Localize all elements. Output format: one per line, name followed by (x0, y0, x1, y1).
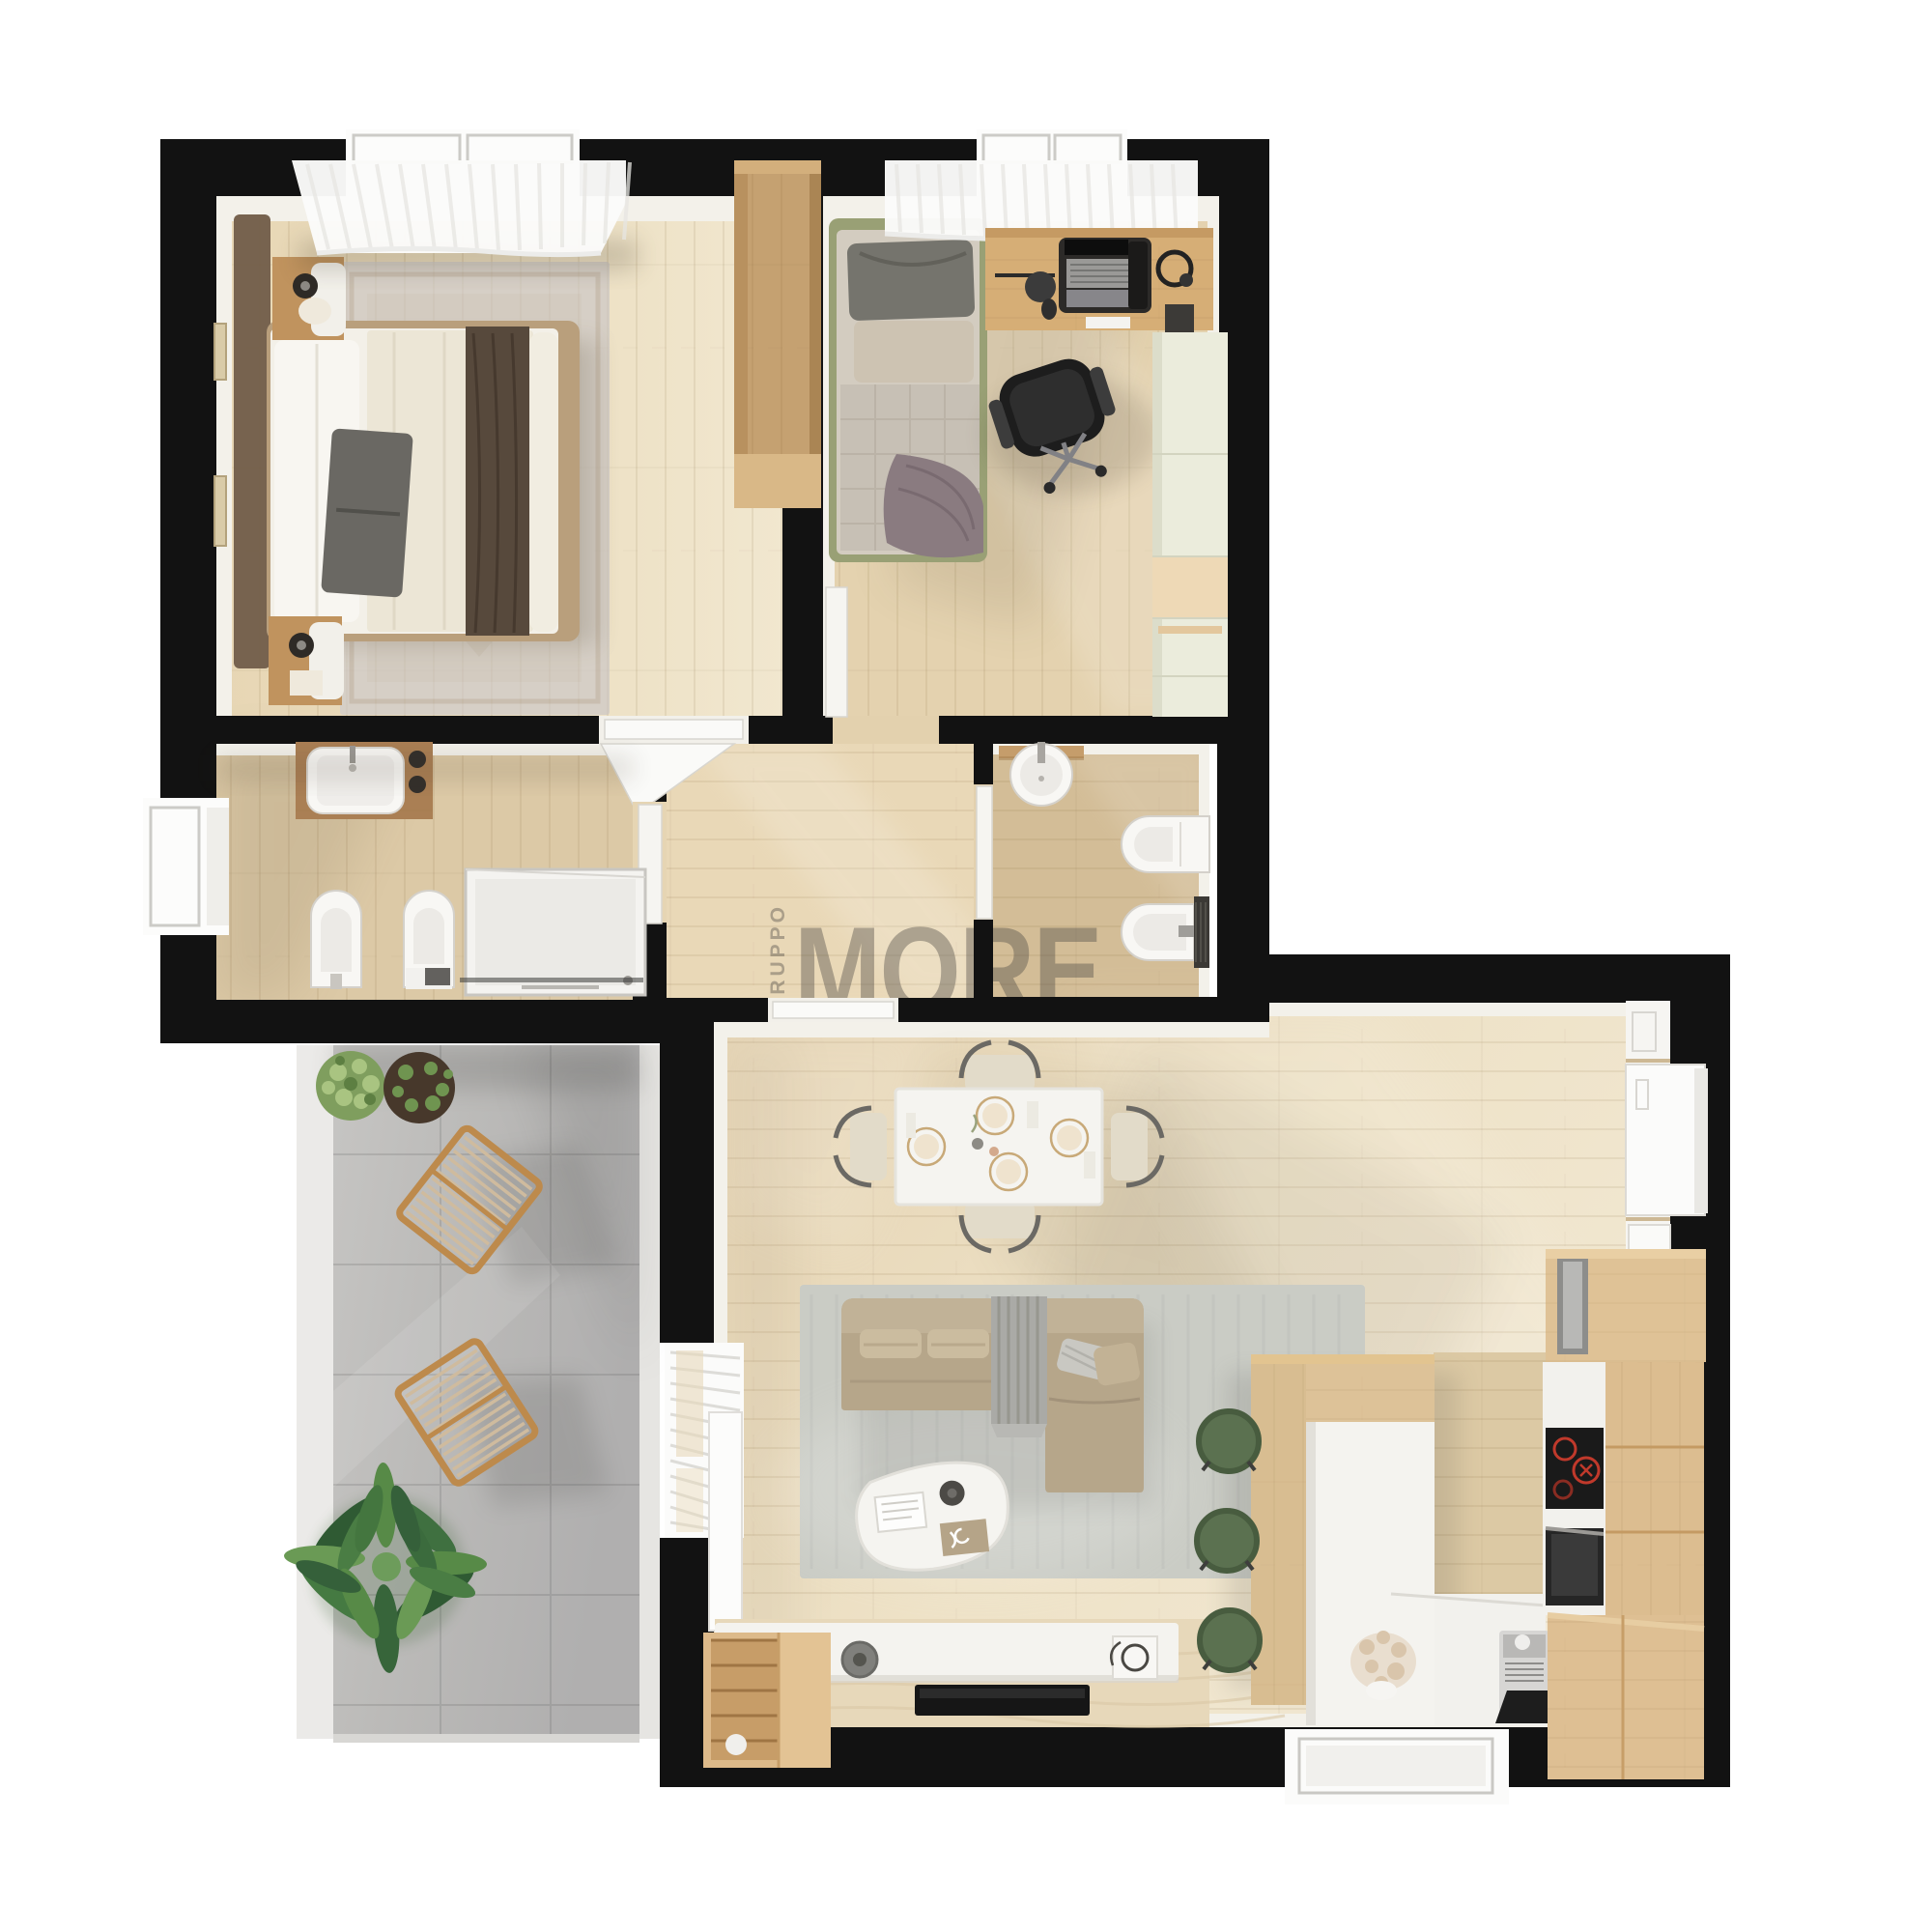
svg-text:GRUPPO: GRUPPO (767, 903, 789, 1014)
